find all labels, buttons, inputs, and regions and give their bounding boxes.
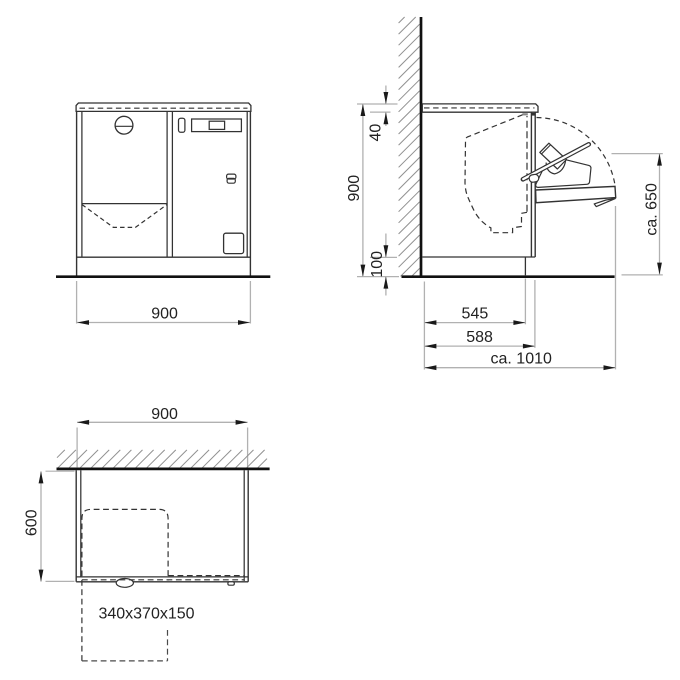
svg-text:ca. 1010: ca. 1010 bbox=[491, 351, 552, 368]
svg-text:545: 545 bbox=[462, 306, 489, 323]
svg-text:600: 600 bbox=[24, 509, 41, 536]
svg-text:900: 900 bbox=[346, 175, 363, 202]
svg-text:100: 100 bbox=[369, 251, 386, 278]
svg-text:40: 40 bbox=[368, 124, 385, 142]
svg-text:900: 900 bbox=[151, 406, 178, 423]
svg-text:340x370x150: 340x370x150 bbox=[98, 606, 194, 623]
svg-text:ca. 650: ca. 650 bbox=[643, 183, 660, 236]
svg-text:900: 900 bbox=[151, 306, 178, 323]
svg-text:588: 588 bbox=[466, 329, 493, 346]
